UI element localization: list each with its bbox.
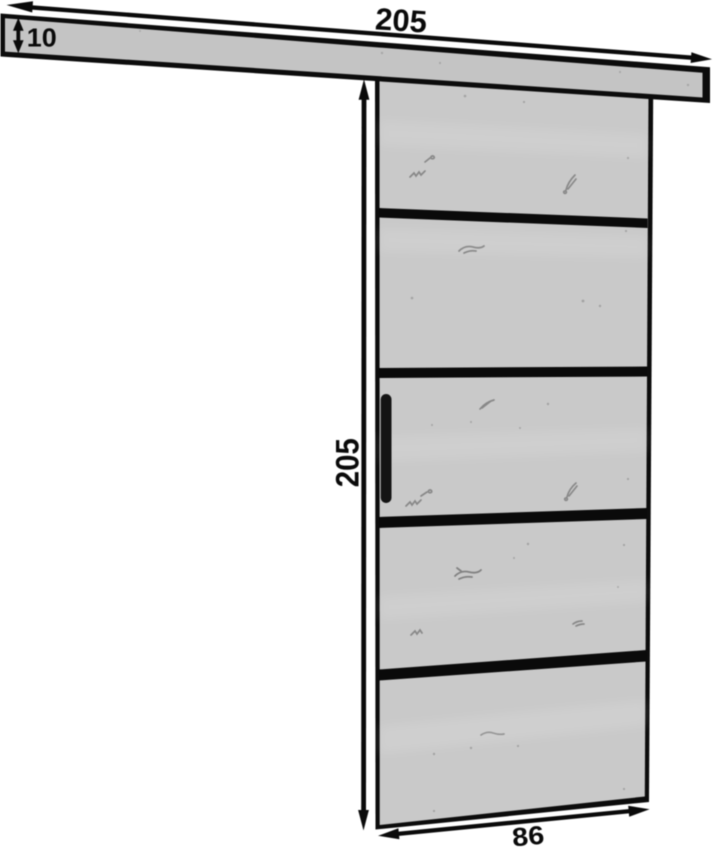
svg-text:205: 205	[330, 438, 366, 487]
svg-text:205: 205	[374, 1, 428, 39]
svg-text:10: 10	[27, 23, 57, 53]
svg-text:86: 86	[511, 820, 546, 847]
